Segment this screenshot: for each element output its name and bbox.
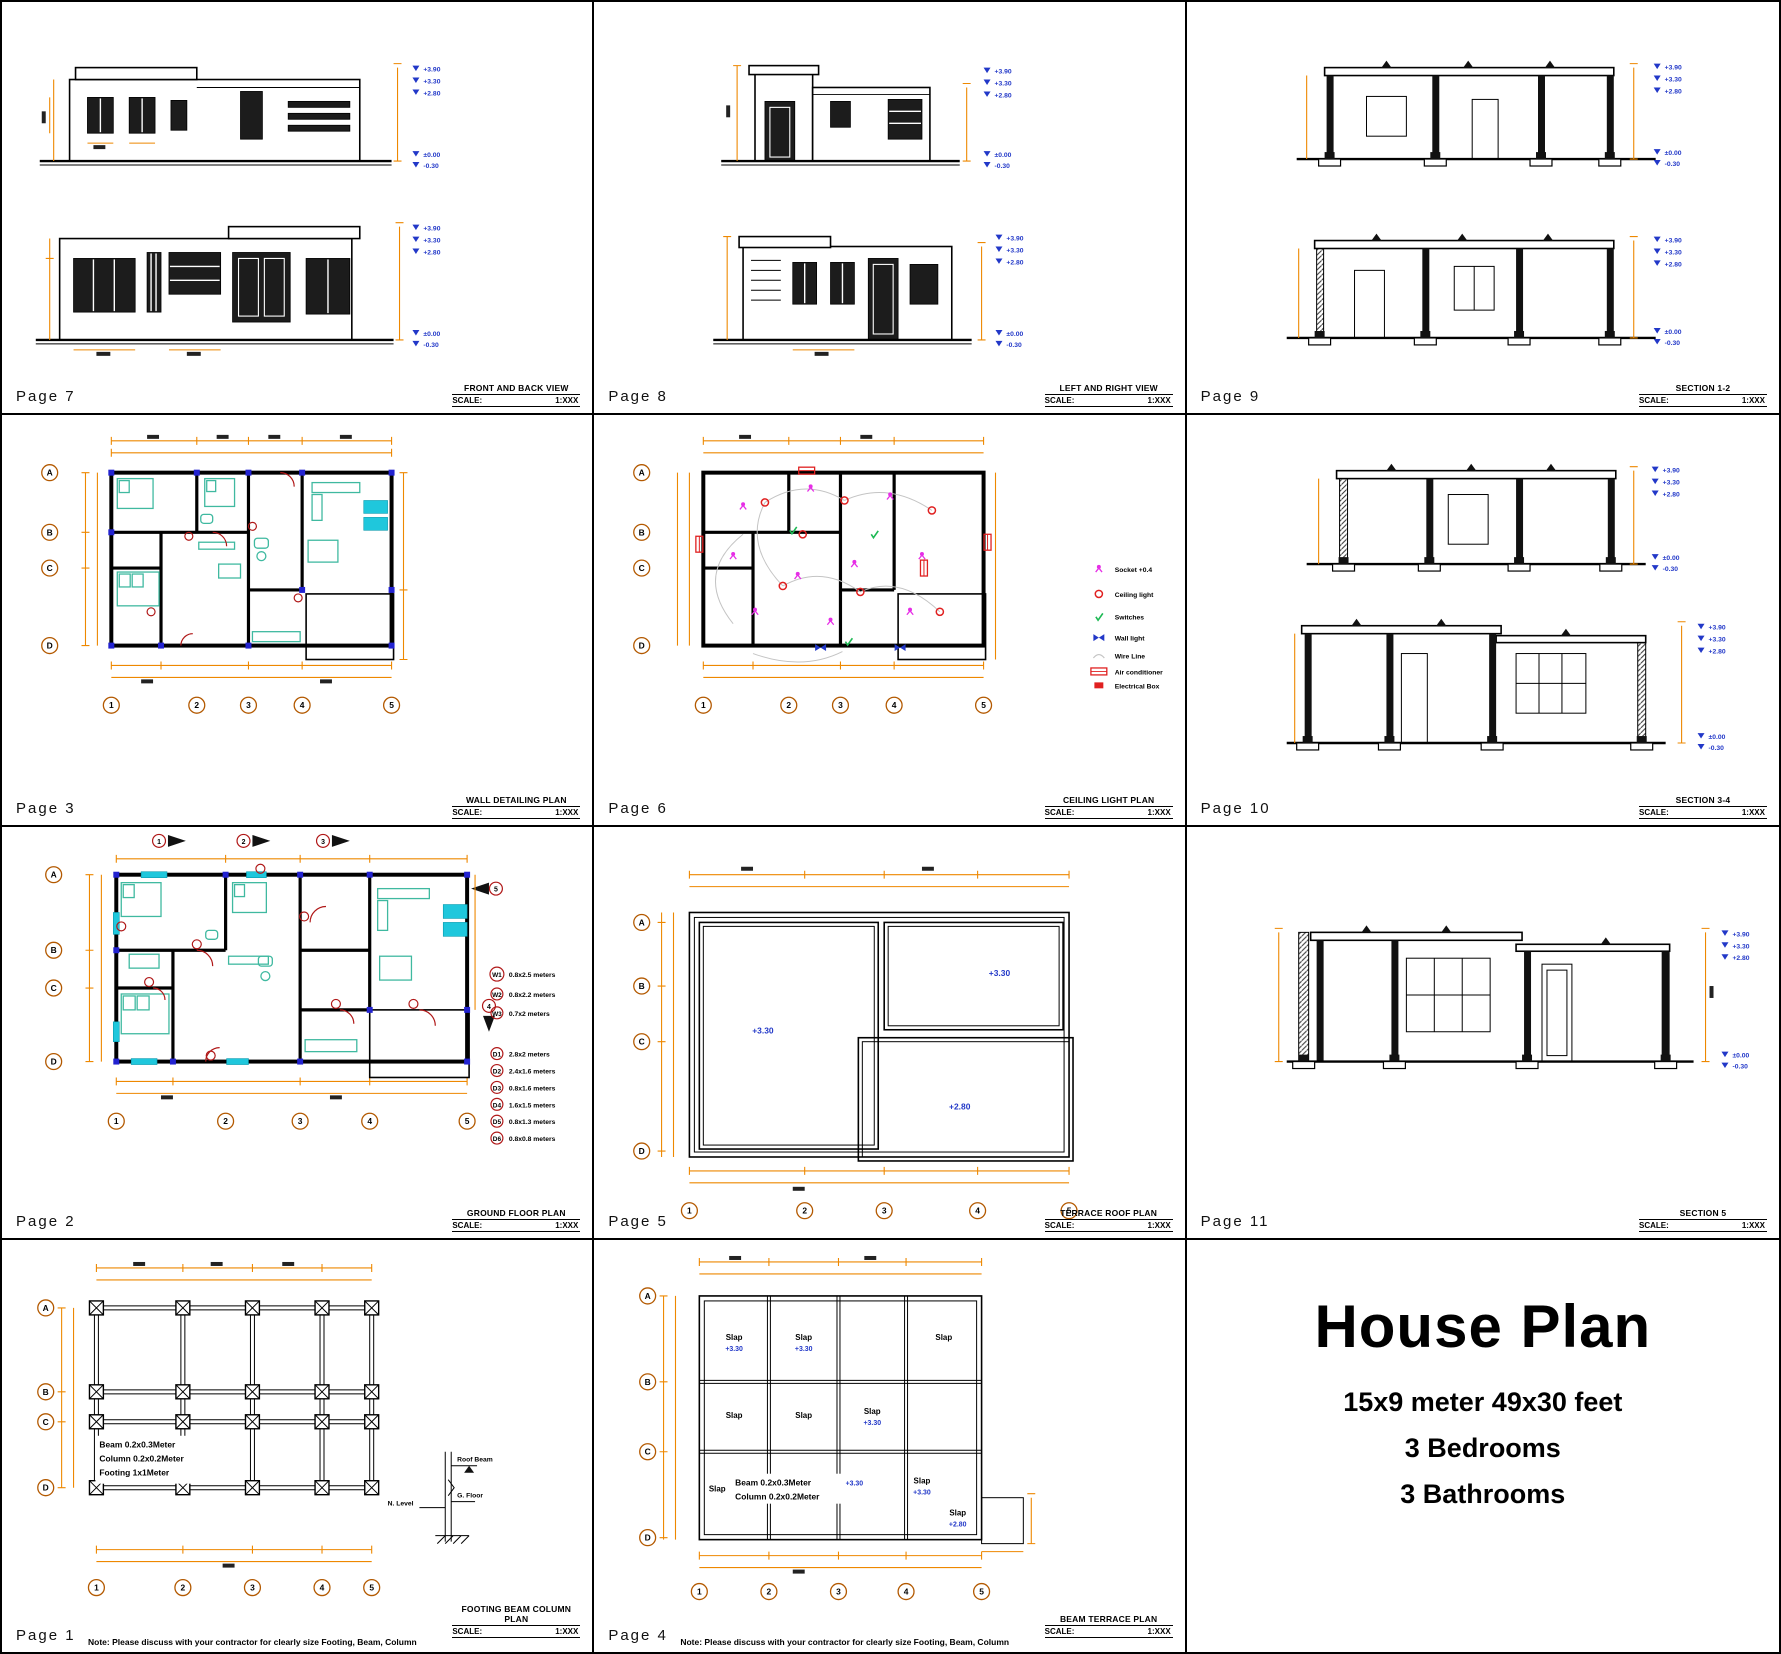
svg-text:3: 3	[246, 700, 251, 710]
svg-text:+3.90: +3.90	[1732, 931, 1749, 938]
svg-text:+3.90: +3.90	[1007, 236, 1024, 243]
svg-text:1.6x1.5 meters: 1.6x1.5 meters	[509, 1102, 556, 1109]
page-label: Page 11	[1201, 1213, 1270, 1230]
svg-text:4: 4	[976, 1206, 981, 1216]
svg-text:+3.30: +3.30	[423, 238, 440, 245]
svg-text:D: D	[47, 640, 53, 650]
svg-text:B: B	[639, 981, 645, 991]
svg-text:C: C	[639, 563, 645, 573]
svg-text:+3.30: +3.30	[1664, 249, 1681, 256]
svg-text:+3.30: +3.30	[995, 80, 1012, 87]
spec-text: Beam 0.2x0.3Meter Column 0.2x0.2Meter Fo…	[95, 1435, 194, 1483]
svg-text:+2.80: +2.80	[1664, 88, 1681, 95]
svg-text:B: B	[47, 527, 53, 537]
scale-value: 1:XXX	[1148, 1221, 1171, 1230]
axis-labels: A B C D 1 2 3 4 5	[38, 1299, 380, 1595]
svg-text:+3.30: +3.30	[1007, 247, 1024, 254]
svg-text:A: A	[645, 1290, 651, 1300]
svg-text:D: D	[43, 1482, 49, 1492]
svg-text:0.8x1.3 meters: 0.8x1.3 meters	[509, 1119, 556, 1126]
svg-text:+2.80: +2.80	[1662, 491, 1679, 498]
svg-text:2: 2	[767, 1586, 772, 1596]
svg-text:D4: D4	[493, 1102, 502, 1109]
svg-text:4: 4	[904, 1586, 909, 1596]
svg-text:2: 2	[223, 1116, 228, 1126]
svg-text:Slap: Slap	[864, 1406, 881, 1415]
svg-text:W1: W1	[492, 972, 502, 979]
svg-text:Slap: Slap	[796, 1332, 813, 1341]
front-elevation	[36, 227, 394, 344]
section-2-dimensions	[1298, 237, 1637, 338]
svg-text:1: 1	[697, 1586, 702, 1596]
scale-label: SCALE:	[452, 396, 482, 405]
svg-text:N. Level: N. Level	[388, 1500, 414, 1507]
svg-text:D3: D3	[493, 1085, 502, 1092]
svg-text:5: 5	[369, 1582, 374, 1592]
svg-text:+2.80: +2.80	[1664, 261, 1681, 268]
svg-text:A: A	[47, 467, 53, 477]
svg-text:+3.90: +3.90	[423, 67, 440, 74]
svg-text:B: B	[43, 1386, 49, 1396]
page-label: Page 3	[16, 800, 76, 817]
scale-value: 1:XXX	[555, 1221, 578, 1230]
drawing-title-block: BEAM TERRACE PLAN SCALE:1:XXX	[1045, 1614, 1173, 1638]
panel-page-2: 1 2 3 4 5	[2, 827, 594, 1240]
page-label: Page 7	[16, 388, 76, 405]
svg-text:Socket +0.4: Socket +0.4	[1115, 567, 1153, 574]
scale-label: SCALE:	[1639, 1221, 1669, 1230]
svg-text:Slap: Slap	[950, 1508, 967, 1517]
panel-page-1: Beam 0.2x0.3Meter Column 0.2x0.2Meter Fo…	[2, 1240, 594, 1653]
svg-text:±0.00: ±0.00	[1662, 555, 1679, 562]
svg-text:+2.80: +2.80	[995, 92, 1012, 99]
page-label: Page 5	[608, 1213, 668, 1230]
beam-terrace-plan-drawing: Slap+3.30 Slap+3.30 Slap Slap Slap Slap+…	[594, 1240, 1184, 1653]
svg-text:3: 3	[298, 1116, 303, 1126]
svg-text:+3.30: +3.30	[726, 1345, 744, 1352]
drawing-title: WALL DETAILING PLAN	[452, 795, 580, 807]
plan-walls	[116, 875, 469, 1078]
svg-text:±0.00: ±0.00	[1708, 734, 1725, 741]
section-5-drawing: +3.90 +3.30 +2.80 ±0.00 -0.30	[1187, 827, 1779, 1238]
drawing-title-block: SECTION 1-2 SCALE:1:XXX	[1639, 383, 1767, 407]
page-label: Page 1	[16, 1627, 76, 1644]
svg-text:-0.30: -0.30	[1732, 1064, 1748, 1071]
svg-text:1: 1	[114, 1116, 119, 1126]
svg-text:+2.80: +2.80	[1007, 259, 1024, 266]
spec-text: Beam 0.2x0.3Meter Column 0.2x0.2Meter +3…	[731, 1473, 863, 1503]
svg-text:+2.80: +2.80	[1732, 955, 1749, 962]
panel-page-5: +3.30 +3.30 +2.80 A B C D 1 2 3 4 5 Page…	[594, 827, 1186, 1240]
back-elevation	[40, 68, 392, 165]
svg-text:W2: W2	[492, 992, 502, 999]
section-3-dimensions	[1318, 466, 1637, 563]
front-back-view-drawing: +3.90 +3.30 +2.80 ±0.00 -0.30	[2, 2, 592, 413]
scale-label: SCALE:	[1045, 808, 1075, 817]
left-right-view-drawing: +3.90 +3.30 +2.80 ±0.00 -0.30	[594, 2, 1184, 413]
plan-dimensions	[658, 867, 1069, 1191]
svg-text:C: C	[47, 563, 53, 573]
drawing-title-block: FRONT AND BACK VIEW SCALE:1:XXX	[452, 383, 580, 407]
panel-page-4: Slap+3.30 Slap+3.30 Slap Slap Slap Slap+…	[594, 1240, 1186, 1653]
svg-text:C: C	[51, 983, 57, 993]
drawing-title: SECTION 1-2	[1639, 383, 1767, 395]
panel-page-10: +3.90 +3.30 +2.80 ±0.00 -0.30	[1187, 415, 1779, 828]
svg-text:5: 5	[389, 700, 394, 710]
svg-text:-0.30: -0.30	[995, 163, 1011, 170]
svg-text:±0.00: ±0.00	[1664, 150, 1681, 157]
drawing-title: GROUND FLOOR PLAN	[452, 1208, 580, 1220]
svg-text:+3.30: +3.30	[1708, 636, 1725, 643]
scale-label: SCALE:	[1045, 1221, 1075, 1230]
svg-text:-0.30: -0.30	[1664, 161, 1680, 168]
svg-text:0.7x2 meters: 0.7x2 meters	[509, 1011, 550, 1018]
svg-text:5: 5	[980, 1586, 985, 1596]
drawing-title: FOOTING BEAM COLUMN PLAN	[452, 1604, 580, 1626]
svg-text:B: B	[51, 945, 57, 955]
sheet-size: 15x9 meter 49x30 feet	[1314, 1387, 1651, 1418]
scale-value: 1:XXX	[1742, 1221, 1765, 1230]
sheet-title-block: House Plan 15x9 meter 49x30 feet 3 Bedro…	[1314, 1292, 1651, 1525]
section-4	[1286, 618, 1665, 749]
svg-text:D: D	[51, 1057, 57, 1067]
svg-text:4: 4	[367, 1116, 372, 1126]
svg-text:Switches: Switches	[1115, 614, 1145, 621]
panel-page-8: +3.90 +3.30 +2.80 ±0.00 -0.30	[594, 2, 1186, 415]
contractor-note: Note: Please discuss with your contracto…	[680, 1637, 1009, 1647]
scale-value: 1:XXX	[1742, 808, 1765, 817]
sheet-bathrooms: 3 Bathrooms	[1314, 1479, 1651, 1510]
svg-text:Roof Beam: Roof Beam	[457, 1456, 493, 1463]
page-label: Page 9	[1201, 388, 1261, 405]
ceiling-legend: Socket +0.4 Ceiling light Switches Wall …	[1091, 564, 1163, 689]
panel-sheet-title: House Plan 15x9 meter 49x30 feet 3 Bedro…	[1187, 1240, 1779, 1653]
front-elevation-levels: +3.90 +3.30 +2.80 ±0.00 -0.30	[412, 225, 440, 349]
svg-text:2: 2	[803, 1206, 808, 1216]
svg-text:-0.30: -0.30	[1662, 566, 1678, 573]
scale-label: SCALE:	[452, 1221, 482, 1230]
svg-text:Beam 0.2x0.3Meter: Beam 0.2x0.3Meter	[735, 1477, 812, 1487]
section-3	[1306, 463, 1645, 570]
svg-text:Wall light: Wall light	[1115, 635, 1145, 642]
scale-label: SCALE:	[452, 808, 482, 817]
svg-text:4: 4	[320, 1582, 325, 1592]
svg-text:+3.30: +3.30	[1662, 479, 1679, 486]
svg-text:+3.30: +3.30	[913, 1489, 931, 1496]
drawing-title: CEILING LIGHT PLAN	[1045, 795, 1173, 807]
section-3-levels: +3.90 +3.30 +2.80 ±0.00 -0.30	[1651, 466, 1679, 572]
roof-outlines	[690, 912, 1074, 1160]
svg-text:4: 4	[892, 700, 897, 710]
svg-text:Column 0.2x0.2Meter: Column 0.2x0.2Meter	[735, 1491, 820, 1501]
svg-text:Slap: Slap	[936, 1332, 953, 1341]
svg-text:B: B	[639, 527, 645, 537]
panel-page-11: +3.90 +3.30 +2.80 ±0.00 -0.30 Page 11 SE…	[1187, 827, 1779, 1240]
drawing-title: TERRACE ROOF PLAN	[1045, 1208, 1173, 1220]
contractor-note: Note: Please discuss with your contracto…	[88, 1637, 417, 1647]
house-plan-sheet: +3.90 +3.30 +2.80 ±0.00 -0.30	[0, 0, 1781, 1654]
svg-text:W3: W3	[492, 1011, 502, 1018]
svg-text:D1: D1	[493, 1052, 502, 1059]
svg-text:3: 3	[250, 1582, 255, 1592]
svg-text:±0.00: ±0.00	[1007, 331, 1024, 338]
plan-dimensions	[660, 1255, 1036, 1573]
svg-text:5: 5	[982, 700, 987, 710]
scale-value: 1:XXX	[1148, 1627, 1171, 1636]
svg-text:3: 3	[836, 1586, 841, 1596]
scale-value: 1:XXX	[555, 396, 578, 405]
svg-text:A: A	[639, 467, 645, 477]
svg-text:+2.80: +2.80	[423, 90, 440, 97]
section-5-levels: +3.90 +3.30 +2.80 ±0.00 -0.30	[1721, 930, 1749, 1070]
svg-text:2: 2	[181, 1582, 186, 1592]
svg-text:±0.00: ±0.00	[423, 331, 440, 338]
scale-value: 1:XXX	[555, 808, 578, 817]
drawing-title-block: GROUND FLOOR PLAN SCALE:1:XXX	[452, 1208, 580, 1232]
svg-text:-0.30: -0.30	[423, 163, 439, 170]
svg-text:+3.30: +3.30	[1732, 943, 1749, 950]
svg-text:4: 4	[487, 1004, 491, 1011]
page-label: Page 8	[608, 388, 668, 405]
svg-text:-0.30: -0.30	[1007, 342, 1023, 349]
svg-text:0.8x2.5 meters: 0.8x2.5 meters	[509, 972, 556, 979]
svg-text:0.8x2.2 meters: 0.8x2.2 meters	[509, 992, 556, 999]
page-label: Page 4	[608, 1627, 668, 1644]
svg-text:0.8x1.6 meters: 0.8x1.6 meters	[509, 1085, 556, 1092]
svg-text:+3.90: +3.90	[1664, 238, 1681, 245]
svg-text:D2: D2	[493, 1068, 502, 1075]
svg-text:+3.30: +3.30	[423, 79, 440, 86]
ceiling-light-plan-drawing: Socket +0.4 Ceiling light Switches Wall …	[594, 415, 1184, 826]
svg-text:-0.30: -0.30	[1708, 744, 1724, 751]
svg-text:+3.90: +3.90	[1664, 65, 1681, 72]
scale-label: SCALE:	[1639, 396, 1669, 405]
drawing-title: BEAM TERRACE PLAN	[1045, 1614, 1173, 1626]
svg-text:5: 5	[465, 1116, 470, 1126]
svg-text:2: 2	[787, 700, 792, 710]
svg-text:+3.90: +3.90	[1708, 624, 1725, 631]
axis-labels: A B C D 1 2 3 4 5	[634, 914, 1077, 1218]
drawing-title-block: FOOTING BEAM COLUMN PLAN SCALE:1:XXX	[452, 1604, 580, 1638]
section-5	[1286, 925, 1693, 1068]
svg-text:2: 2	[242, 839, 246, 846]
drawing-title-block: CEILING LIGHT PLAN SCALE:1:XXX	[1045, 795, 1173, 819]
svg-text:+3.90: +3.90	[1662, 467, 1679, 474]
svg-text:Slap: Slap	[709, 1484, 726, 1493]
scale-label: SCALE:	[452, 1627, 482, 1636]
svg-text:4: 4	[300, 700, 305, 710]
footing-beam-column-plan-drawing: Beam 0.2x0.3Meter Column 0.2x0.2Meter Fo…	[2, 1240, 592, 1653]
panel-page-6: Socket +0.4 Ceiling light Switches Wall …	[594, 415, 1186, 828]
panel-page-7: +3.90 +3.30 +2.80 ±0.00 -0.30	[2, 2, 594, 415]
svg-text:±0.00: ±0.00	[1664, 329, 1681, 336]
section-2-levels: +3.90 +3.30 +2.80 ±0.00 -0.30	[1653, 237, 1681, 347]
svg-text:+2.80: +2.80	[949, 1521, 967, 1528]
svg-text:Air conditioner: Air conditioner	[1115, 669, 1163, 676]
svg-text:-0.30: -0.30	[1664, 340, 1680, 347]
wall-detailing-plan-drawing: A B C D 1 2 3 4 5	[2, 415, 592, 826]
scale-value: 1:XXX	[1148, 396, 1171, 405]
svg-text:D: D	[639, 640, 645, 650]
door-legend: D1 2.8x2 meters D2 2.4x1.6 meters D3 0.8…	[491, 1048, 556, 1144]
svg-text:Beam 0.2x0.3Meter: Beam 0.2x0.3Meter	[99, 1439, 176, 1449]
svg-text:Electrical Box: Electrical Box	[1115, 683, 1160, 690]
section-2	[1286, 234, 1655, 345]
svg-text:-0.30: -0.30	[423, 342, 439, 349]
svg-text:G. Floor: G. Floor	[457, 1492, 483, 1499]
page-label: Page 6	[608, 800, 668, 817]
scale-label: SCALE:	[1045, 396, 1075, 405]
svg-text:Footing 1x1Meter: Footing 1x1Meter	[99, 1467, 170, 1477]
svg-text:+2.80: +2.80	[949, 1101, 971, 1111]
svg-text:+3.30: +3.30	[846, 1480, 864, 1487]
svg-text:1: 1	[109, 700, 114, 710]
back-elevation-levels: +3.90 +3.30 +2.80 ±0.00 -0.30	[412, 66, 440, 170]
svg-text:2.8x2 meters: 2.8x2 meters	[509, 1052, 550, 1059]
svg-text:1: 1	[94, 1582, 99, 1592]
svg-text:5: 5	[494, 887, 498, 894]
plan-walls	[704, 472, 986, 659]
svg-text:2.4x1.6 meters: 2.4x1.6 meters	[509, 1068, 556, 1075]
svg-text:Slap: Slap	[914, 1476, 931, 1485]
left-elevation-levels: +3.90 +3.30 +2.80 ±0.00 -0.30	[984, 68, 1012, 170]
svg-text:Slap: Slap	[726, 1410, 743, 1419]
drawing-title-block: SECTION 5 SCALE:1:XXX	[1639, 1208, 1767, 1232]
svg-text:D: D	[645, 1532, 651, 1542]
svg-text:Column 0.2x0.2Meter: Column 0.2x0.2Meter	[99, 1453, 184, 1463]
svg-text:1: 1	[687, 1206, 692, 1216]
svg-text:+3.30: +3.30	[1664, 77, 1681, 84]
svg-text:+3.30: +3.30	[989, 968, 1011, 978]
svg-text:D6: D6	[493, 1136, 502, 1143]
svg-text:3: 3	[882, 1206, 887, 1216]
svg-text:Ceiling light: Ceiling light	[1115, 591, 1154, 598]
page-label: Page 10	[1201, 800, 1271, 817]
drawing-title: SECTION 5	[1639, 1208, 1767, 1220]
section-1-2-drawing: +3.90 +3.30 +2.80 ±0.00 -0.30	[1187, 2, 1779, 413]
svg-text:+2.80: +2.80	[1708, 648, 1725, 655]
svg-text:C: C	[639, 1037, 645, 1047]
svg-text:±0.00: ±0.00	[995, 152, 1012, 159]
right-elevation	[714, 237, 972, 344]
svg-text:A: A	[43, 1302, 49, 1312]
drawing-title: SECTION 3-4	[1639, 795, 1767, 807]
svg-text:±0.00: ±0.00	[1732, 1053, 1749, 1060]
svg-text:+2.80: +2.80	[423, 249, 440, 256]
section-4-levels: +3.90 +3.30 +2.80 ±0.00 -0.30	[1697, 623, 1725, 751]
panel-page-3: A B C D 1 2 3 4 5 Page 3 WALL DETAILING …	[2, 415, 594, 828]
right-elevation-levels: +3.90 +3.30 +2.80 ±0.00 -0.30	[996, 235, 1024, 349]
svg-text:Slap: Slap	[726, 1332, 743, 1341]
sheet-title: House Plan	[1314, 1292, 1651, 1361]
svg-text:3: 3	[321, 839, 325, 846]
drawing-title-block: WALL DETAILING PLAN SCALE:1:XXX	[452, 795, 580, 819]
footing-detail: Roof Beam G. Floor N. Level	[388, 1451, 493, 1543]
svg-text:+3.90: +3.90	[995, 69, 1012, 76]
scale-label: SCALE:	[1045, 1627, 1075, 1636]
section-3-4-drawing: +3.90 +3.30 +2.80 ±0.00 -0.30	[1187, 415, 1779, 826]
svg-text:1: 1	[701, 700, 706, 710]
sheet-bedrooms: 3 Bedrooms	[1314, 1433, 1651, 1464]
panel-page-9: +3.90 +3.30 +2.80 ±0.00 -0.30	[1187, 2, 1779, 415]
svg-text:A: A	[51, 870, 57, 880]
section-1-levels: +3.90 +3.30 +2.80 ±0.00 -0.30	[1653, 64, 1681, 168]
roof-levels: +3.30 +3.30 +2.80	[753, 968, 1011, 1111]
svg-text:Wire Line: Wire Line	[1115, 653, 1146, 660]
section-1	[1296, 61, 1655, 166]
svg-text:Slap: Slap	[796, 1410, 813, 1419]
svg-text:1: 1	[157, 839, 161, 846]
svg-text:A: A	[639, 917, 645, 927]
svg-text:2: 2	[194, 700, 199, 710]
svg-text:3: 3	[838, 700, 843, 710]
svg-text:B: B	[645, 1376, 651, 1386]
drawing-title-block: TERRACE ROOF PLAN SCALE:1:XXX	[1045, 1208, 1173, 1232]
window-legend: W1 0.8x2.5 meters W2 0.8x2.2 meters W3 0…	[490, 967, 556, 1019]
svg-text:D5: D5	[493, 1119, 502, 1126]
scale-value: 1:XXX	[1148, 808, 1171, 817]
svg-text:+3.90: +3.90	[423, 226, 440, 233]
ground-floor-plan-drawing: 1 2 3 4 5	[2, 827, 592, 1238]
scale-label: SCALE:	[1639, 808, 1669, 817]
beam-grid	[700, 1295, 1024, 1543]
scale-value: 1:XXX	[555, 1627, 578, 1636]
svg-text:0.8x0.8 meters: 0.8x0.8 meters	[509, 1136, 556, 1143]
terrace-roof-plan-drawing: +3.30 +3.30 +2.80 A B C D 1 2 3 4 5	[594, 827, 1184, 1238]
drawing-title: FRONT AND BACK VIEW	[452, 383, 580, 395]
svg-text:D: D	[639, 1146, 645, 1156]
scale-value: 1:XXX	[1742, 396, 1765, 405]
drawing-title: LEFT AND RIGHT VIEW	[1045, 383, 1173, 395]
svg-text:+3.30: +3.30	[864, 1419, 882, 1426]
svg-text:+3.30: +3.30	[795, 1345, 813, 1352]
drawing-title-block: LEFT AND RIGHT VIEW SCALE:1:XXX	[1045, 383, 1173, 407]
svg-text:C: C	[645, 1446, 651, 1456]
svg-text:±0.00: ±0.00	[423, 152, 440, 159]
left-elevation	[722, 66, 961, 165]
svg-text:C: C	[43, 1416, 49, 1426]
drawing-title-block: SECTION 3-4 SCALE:1:XXX	[1639, 795, 1767, 819]
svg-text:+3.30: +3.30	[753, 1026, 775, 1036]
page-label: Page 2	[16, 1213, 76, 1230]
